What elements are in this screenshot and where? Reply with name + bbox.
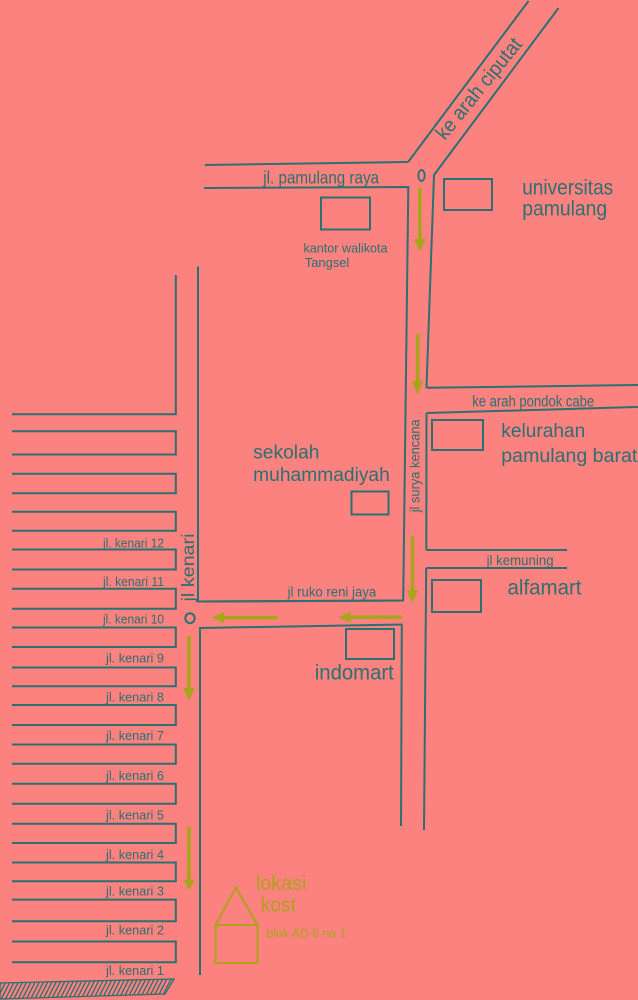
svg-text:jl ruko reni jaya: jl ruko reni jaya [287, 585, 377, 600]
svg-text:jl. kenari 4: jl. kenari 4 [105, 848, 164, 862]
svg-text:blok AD 8 no 1: blok AD 8 no 1 [266, 926, 346, 940]
svg-text:universitas: universitas [522, 176, 613, 199]
svg-text:pamulang: pamulang [522, 197, 607, 220]
svg-text:jl kemuning: jl kemuning [486, 553, 554, 568]
svg-text:ke arah pondok cabe: ke arah pondok cabe [472, 394, 594, 411]
svg-text:jl kenari: jl kenari [178, 534, 198, 603]
svg-text:jl. kenari 9: jl. kenari 9 [105, 652, 164, 666]
svg-text:kantor walikota: kantor walikota [304, 241, 389, 256]
svg-text:jl. kenari 3: jl. kenari 3 [105, 884, 164, 898]
svg-text:jl. kenari 8: jl. kenari 8 [105, 690, 164, 704]
svg-text:kost: kost [261, 895, 297, 917]
svg-text:jl. kenari 5: jl. kenari 5 [105, 809, 164, 823]
svg-text:jl. pamulang raya: jl. pamulang raya [262, 168, 379, 188]
svg-text:alfamart: alfamart [508, 577, 582, 600]
svg-text:jl. kenari 1: jl. kenari 1 [105, 964, 164, 978]
svg-text:jl. kenari 12: jl. kenari 12 [102, 537, 164, 551]
svg-text:indomart: indomart [315, 662, 394, 685]
svg-text:pamulang barat: pamulang barat [501, 445, 638, 467]
svg-text:jl. kenari 11: jl. kenari 11 [102, 575, 164, 589]
svg-text:kelurahan: kelurahan [501, 420, 585, 442]
svg-text:jl. kenari 7: jl. kenari 7 [105, 729, 164, 743]
svg-text:lokasi: lokasi [256, 873, 307, 895]
svg-text:sekolah: sekolah [253, 442, 319, 463]
svg-text:jl surya kencana: jl surya kencana [408, 419, 423, 513]
svg-text:Tangsel: Tangsel [305, 255, 350, 270]
svg-text:muhammadiyah: muhammadiyah [253, 465, 390, 486]
svg-text:jl. kenari 10: jl. kenari 10 [102, 613, 164, 627]
svg-text:jl. kenari 2: jl. kenari 2 [105, 923, 164, 937]
svg-text:jl. kenari 6: jl. kenari 6 [105, 769, 164, 783]
